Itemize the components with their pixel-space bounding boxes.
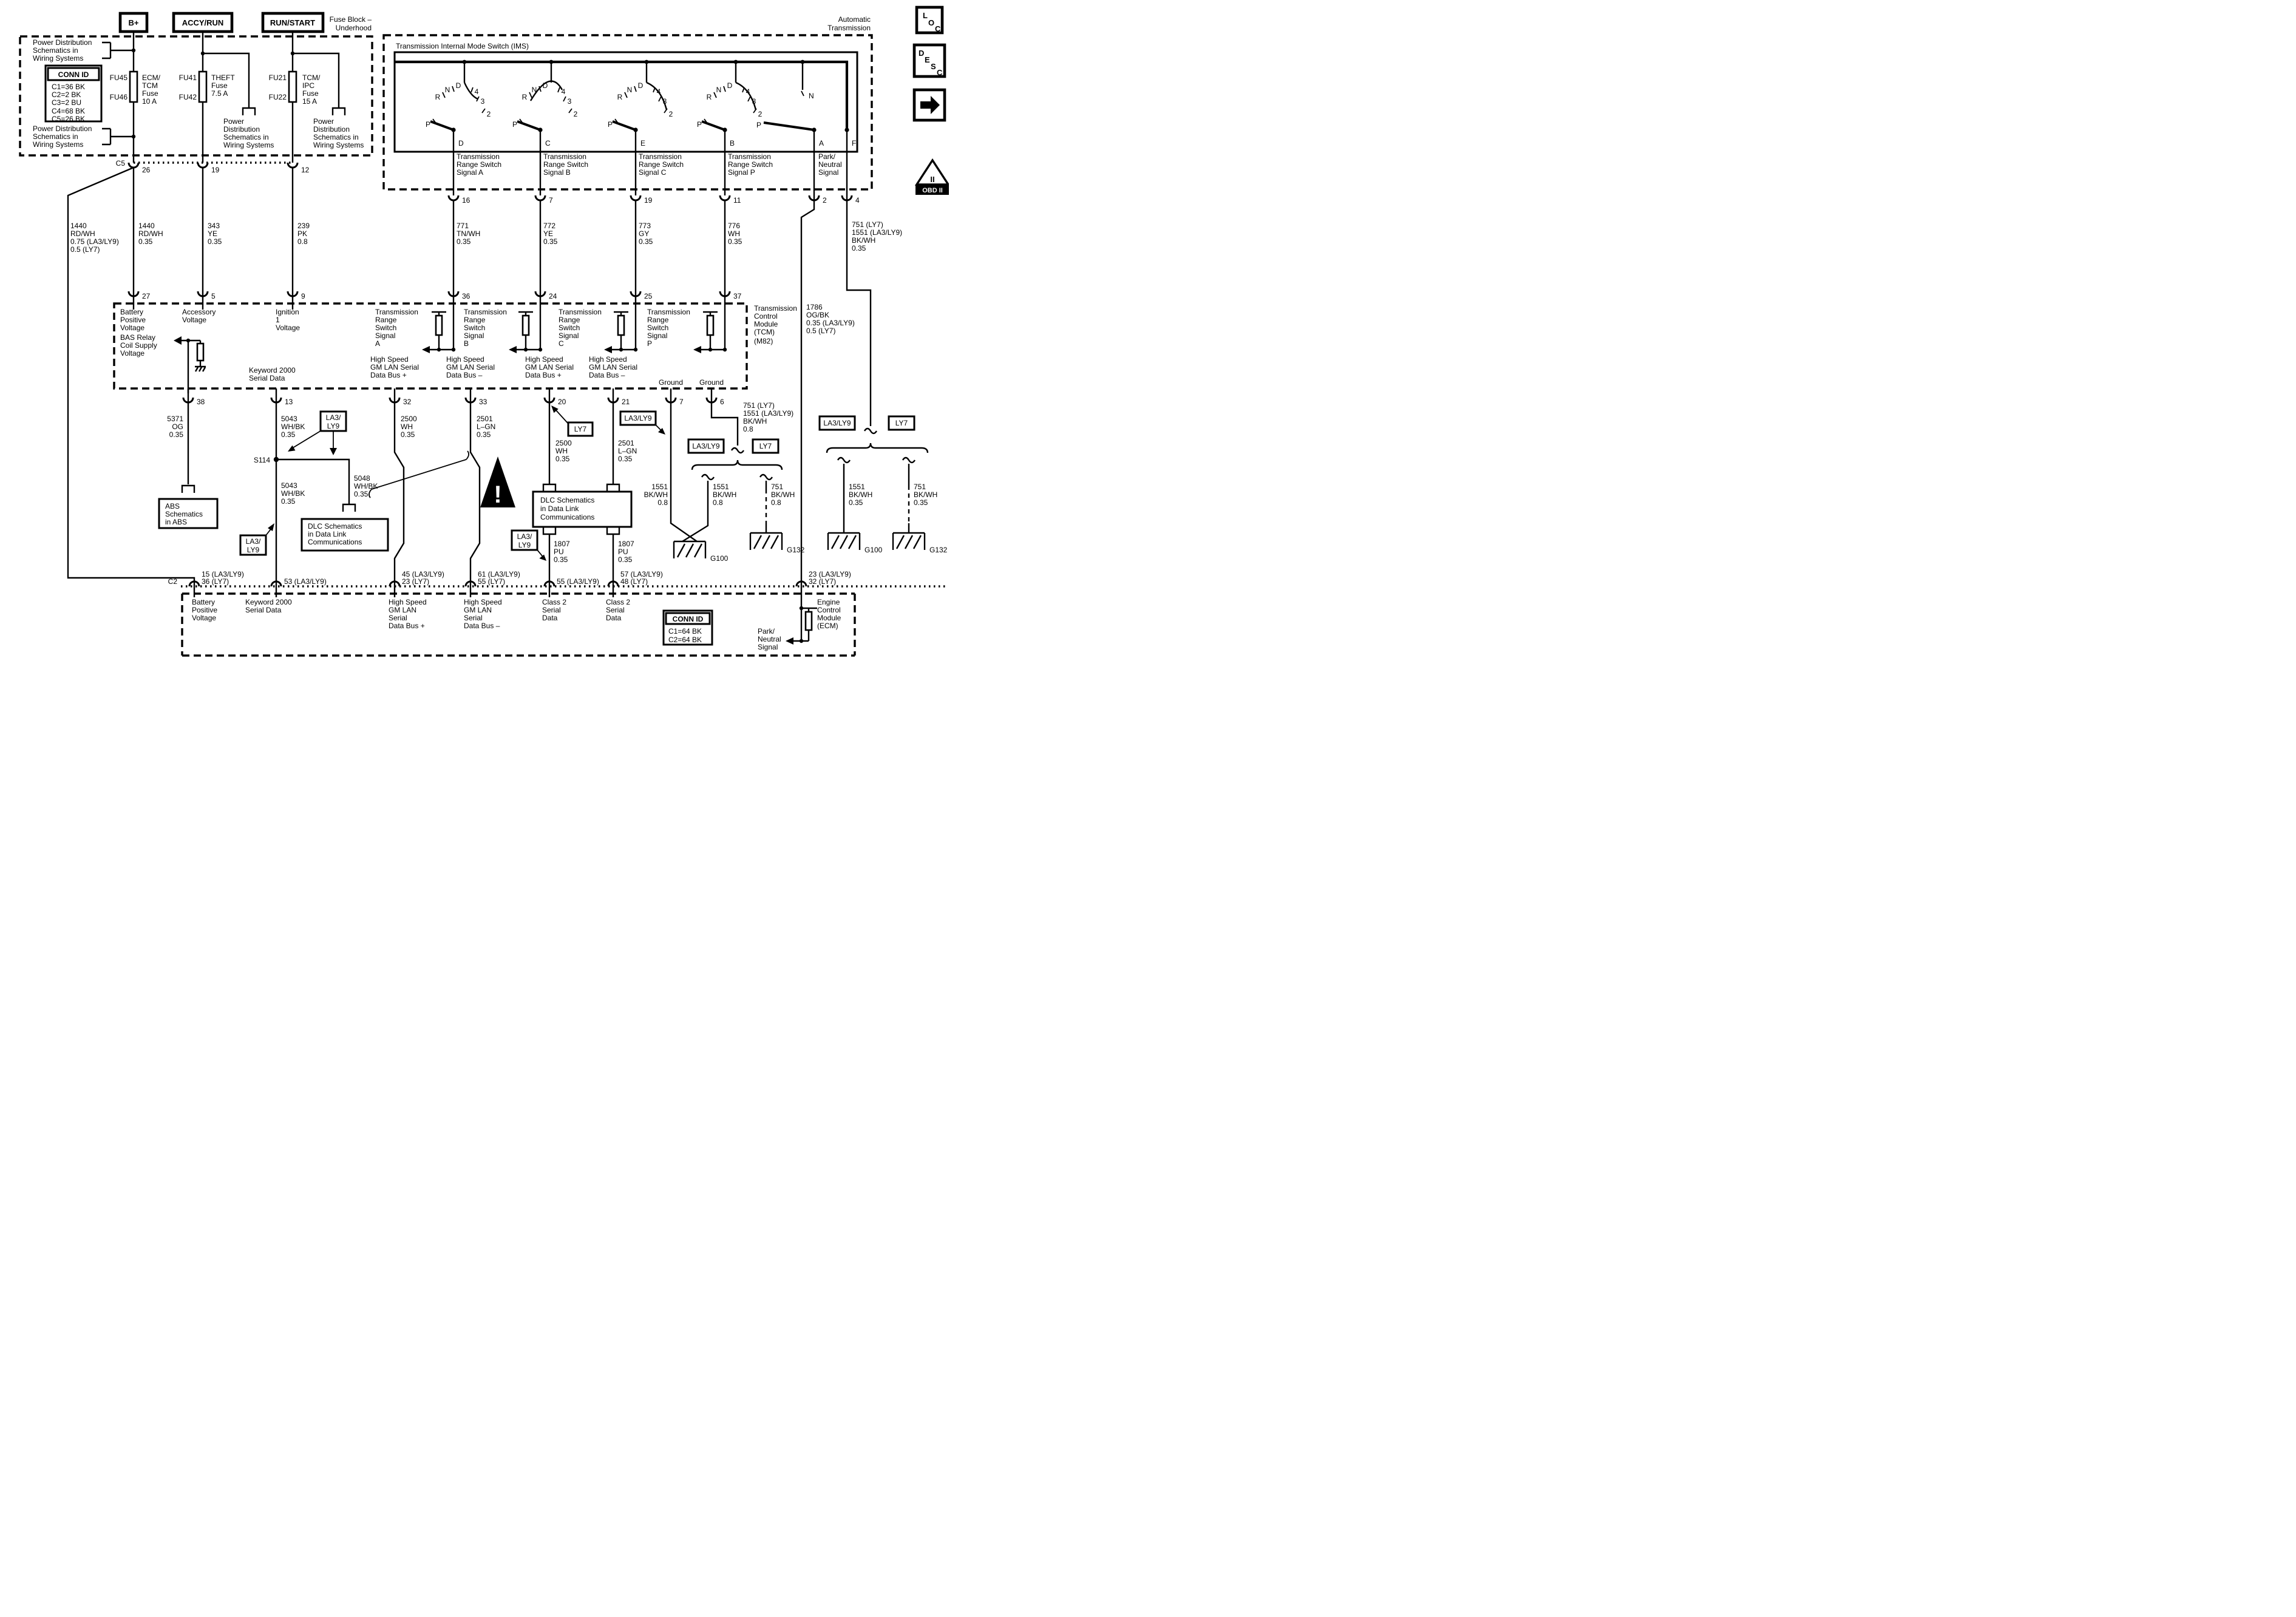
svg-text:N: N [532, 86, 537, 94]
svg-text:LY7: LY7 [759, 442, 772, 450]
svg-text:Transmission: Transmission [559, 308, 602, 316]
svg-text:C: C [559, 339, 564, 348]
svg-text:D: D [727, 81, 733, 90]
fuse-block-underhood-box: FU45 FU46 ECM/ TCM Fuse 10 A FU41 FU42 T… [20, 32, 372, 163]
svg-text:Data Bus –: Data Bus – [446, 371, 483, 379]
svg-text:751: 751 [771, 483, 783, 491]
svg-text:751 (LY7): 751 (LY7) [743, 401, 775, 410]
svg-text:0.8: 0.8 [713, 498, 723, 507]
svg-text:P: P [426, 120, 430, 129]
svg-text:Signal: Signal [647, 331, 667, 340]
svg-text:BK/WH: BK/WH [852, 236, 875, 245]
svg-text:R: R [707, 93, 712, 101]
svg-text:Voltage: Voltage [120, 324, 144, 332]
tcm-signal-p: Transmission Range Switch Signal P [647, 308, 727, 353]
fuse-tcm-ipc [289, 72, 296, 102]
svg-text:5043: 5043 [281, 481, 297, 490]
svg-text:TCM: TCM [142, 81, 158, 90]
svg-text:Wiring Systems: Wiring Systems [313, 141, 364, 149]
svg-text:D: D [458, 139, 464, 147]
svg-text:Transmission: Transmission [827, 24, 871, 32]
power-rail-b-plus: B+ [120, 13, 147, 32]
svg-text:in ABS: in ABS [165, 518, 187, 526]
schematic-canvas: B+ ACCY/RUN RUN/START Fuse Block – Under… [0, 0, 949, 668]
svg-text:Control: Control [817, 606, 841, 614]
svg-text:4: 4 [562, 87, 566, 96]
svg-text:WH: WH [555, 447, 568, 455]
svg-text:Data: Data [542, 614, 558, 622]
svg-text:5371: 5371 [167, 415, 183, 423]
svg-text:21: 21 [622, 398, 630, 406]
obd2-icon: II OBD II [915, 160, 949, 195]
svg-text:!: ! [494, 481, 501, 508]
svg-text:G100: G100 [710, 554, 729, 563]
svg-text:6: 6 [720, 398, 724, 406]
svg-text:0.5 (LY7): 0.5 (LY7) [70, 245, 100, 254]
svg-text:OBD II: OBD II [922, 187, 943, 194]
svg-text:20: 20 [558, 398, 566, 406]
svg-text:ABS: ABS [165, 502, 180, 510]
svg-text:C: C [935, 24, 941, 33]
power-rail-accy-run: ACCY/RUN [174, 13, 232, 32]
svg-text:Signal: Signal [375, 331, 395, 340]
svg-text:5043: 5043 [281, 415, 297, 423]
svg-text:R: R [617, 93, 623, 101]
svg-text:GY: GY [639, 229, 649, 238]
svg-text:LY9: LY9 [518, 541, 531, 549]
badge-la3ly9: LA3/LY9 [624, 414, 651, 422]
svg-text:Range Switch: Range Switch [543, 160, 588, 169]
svg-text:Switch: Switch [464, 324, 485, 332]
svg-text:Automatic: Automatic [838, 15, 871, 24]
loc-icon[interactable]: L O C [917, 7, 942, 33]
svg-text:Class 2: Class 2 [606, 598, 630, 606]
svg-text:Transmission: Transmission [639, 152, 682, 161]
svg-text:2501: 2501 [618, 439, 634, 447]
svg-text:Positive: Positive [120, 316, 146, 324]
ims-switch-c: R N D 4 3 2 P C [512, 62, 578, 152]
svg-text:WH: WH [401, 422, 413, 431]
svg-text:11: 11 [733, 196, 741, 205]
svg-text:15 A: 15 A [302, 97, 317, 106]
svg-text:PK: PK [297, 229, 307, 238]
svg-text:0.5 (LY7): 0.5 (LY7) [806, 327, 835, 335]
svg-text:Data Bus +: Data Bus + [389, 622, 425, 630]
svg-text:0.35: 0.35 [477, 430, 491, 439]
svg-text:Transmission: Transmission [457, 152, 500, 161]
svg-text:Keyword 2000: Keyword 2000 [249, 366, 296, 375]
svg-text:0.35: 0.35 [852, 244, 866, 253]
svg-text:S114: S114 [254, 456, 270, 464]
svg-text:FU22: FU22 [269, 93, 287, 101]
tcm-ground-branch: 1551 BK/WH 0.8 751 (LY7) 1551 (LA3/LY9) … [644, 401, 805, 563]
svg-text:FU21: FU21 [269, 73, 287, 82]
svg-text:343: 343 [208, 222, 220, 230]
svg-text:N: N [809, 92, 814, 100]
desc-icon[interactable]: D E S C [914, 45, 945, 77]
svg-text:Power: Power [313, 117, 334, 126]
svg-text:Transmission: Transmission [728, 152, 771, 161]
svg-text:53 (LA3/LY9): 53 (LA3/LY9) [284, 577, 327, 586]
svg-text:0.35: 0.35 [208, 237, 222, 246]
svg-text:773: 773 [639, 222, 651, 230]
svg-text:D: D [543, 81, 548, 90]
svg-text:Fuse: Fuse [302, 89, 319, 98]
svg-text:RD/WH: RD/WH [138, 229, 163, 238]
svg-text:0.35: 0.35 [849, 498, 863, 507]
ims-switch-e: R N D 4 3 2 P E [608, 62, 673, 152]
svg-text:in Data Link: in Data Link [308, 530, 347, 538]
svg-text:Voltage: Voltage [182, 316, 206, 324]
svg-text:1807: 1807 [554, 540, 570, 548]
svg-text:2500: 2500 [555, 439, 572, 447]
svg-text:4: 4 [746, 87, 750, 96]
svg-text:C5=26 BK: C5=26 BK [52, 115, 85, 123]
svg-text:LA3/LY9: LA3/LY9 [692, 442, 719, 450]
twisted-pair-mark [369, 451, 469, 498]
svg-text:R: R [435, 93, 441, 101]
svg-text:II: II [930, 175, 934, 184]
ims-title: Transmission Internal Mode Switch (IMS) [396, 42, 529, 50]
svg-text:7: 7 [549, 196, 553, 205]
svg-text:2: 2 [487, 110, 491, 118]
svg-text:Signal A: Signal A [457, 168, 483, 177]
svg-text:0.8: 0.8 [771, 498, 781, 507]
badge-ly7: LY7 [574, 425, 587, 433]
svg-text:Data Bus –: Data Bus – [464, 622, 500, 630]
ims-switch-b: R N D 4 3 2 P B [697, 62, 763, 152]
svg-text:Ignition: Ignition [276, 308, 299, 316]
ims-switch-d: R N D 4 3 2 P D [426, 62, 491, 152]
svg-text:Signal: Signal [464, 331, 484, 340]
svg-text:Data Bus +: Data Bus + [525, 371, 562, 379]
svg-text:Range: Range [559, 316, 580, 324]
svg-text:0.35: 0.35 [554, 555, 568, 564]
svg-text:24: 24 [549, 292, 557, 300]
svg-text:10 A: 10 A [142, 97, 157, 106]
svg-text:0.35: 0.35 [639, 237, 653, 246]
ims-signal-captions: Transmission Range Switch Signal A Trans… [457, 152, 842, 177]
svg-text:C4=68 BK: C4=68 BK [52, 107, 85, 115]
svg-text:Communications: Communications [540, 513, 594, 521]
svg-text:WH/BK: WH/BK [281, 422, 305, 431]
svg-text:0.35 (LA3/LY9): 0.35 (LA3/LY9) [806, 319, 855, 327]
svg-text:Coil Supply: Coil Supply [120, 341, 157, 350]
automatic-transmission-caption: Automatic Transmission [827, 15, 871, 32]
svg-text:Fuse: Fuse [211, 81, 228, 90]
svg-text:0.35: 0.35 [618, 455, 633, 463]
svg-text:0.35: 0.35 [281, 497, 296, 506]
ims-tcm-wires: 771 TN/WH 0.35 772 YE 0.35 773 GY 0.35 7… [453, 200, 742, 291]
svg-text:3: 3 [568, 97, 572, 106]
svg-text:Range: Range [375, 316, 397, 324]
svg-text:1440: 1440 [138, 222, 155, 230]
svg-text:FU42: FU42 [179, 93, 197, 101]
svg-text:GM LAN: GM LAN [464, 606, 492, 614]
svg-text:Transmission: Transmission [464, 308, 507, 316]
svg-text:2: 2 [574, 110, 578, 118]
svg-text:OG: OG [172, 422, 183, 431]
tcm-signal-b: Transmission Range Switch Signal B [464, 308, 542, 353]
svg-text:B: B [730, 139, 735, 147]
ground-g132-right: G132 [893, 533, 948, 554]
svg-text:CONN ID: CONN ID [58, 70, 89, 79]
svg-text:WH/BK: WH/BK [281, 489, 305, 498]
power-rail-run-start: RUN/START [263, 13, 323, 32]
svg-text:LY9: LY9 [327, 422, 340, 430]
svg-text:A: A [375, 339, 380, 348]
svg-text:DLC Schematics: DLC Schematics [308, 522, 362, 531]
svg-text:Module: Module [754, 320, 778, 328]
svg-text:Power Distribution: Power Distribution [33, 38, 92, 47]
svg-text:751 (LY7): 751 (LY7) [852, 220, 883, 229]
svg-text:RD/WH: RD/WH [70, 229, 95, 238]
svg-text:CONN ID: CONN ID [673, 615, 704, 623]
svg-text:Underhood: Underhood [336, 24, 372, 32]
connector-c5-label: C5 [116, 159, 126, 168]
svg-text:E: E [640, 139, 645, 147]
svg-text:IPC: IPC [302, 81, 314, 90]
svg-text:GM LAN: GM LAN [389, 606, 416, 614]
svg-text:YE: YE [543, 229, 553, 238]
svg-text:C2=2 BK: C2=2 BK [52, 90, 81, 99]
svg-text:0.8: 0.8 [297, 237, 308, 246]
svg-text:F: F [852, 139, 856, 147]
svg-text:0.35: 0.35 [138, 237, 153, 246]
svg-text:0.35: 0.35 [555, 455, 570, 463]
svg-text:TCM/: TCM/ [302, 73, 321, 82]
lan-wires: 2500 WH 0.35 2501 L–GN 0.35 ! [369, 405, 515, 586]
ground-g100-right: G100 [828, 533, 883, 554]
warning-triangle-icon: ! [480, 456, 515, 508]
svg-text:R: R [522, 93, 528, 101]
svg-text:751: 751 [914, 483, 926, 491]
svg-text:PU: PU [618, 547, 628, 556]
svg-text:(TCM): (TCM) [754, 328, 775, 336]
wire-1440-label: 1440 RD/WH 0.35 [138, 222, 163, 246]
ims-ground-wire: 751 (LY7) 1551 (LA3/LY9) BK/WH 0.35 LA3/… [820, 202, 948, 554]
svg-text:3: 3 [663, 97, 667, 106]
svg-text:2501: 2501 [477, 415, 493, 423]
svg-text:0.35: 0.35 [457, 237, 471, 246]
svg-text:D: D [638, 81, 644, 90]
svg-text:Ground: Ground [699, 378, 724, 387]
tcm-lan-labels: High Speed GM LAN Serial Data Bus + High… [370, 355, 637, 379]
svg-text:Fuse Block –: Fuse Block – [330, 15, 372, 24]
tcm-signal-c: Transmission Range Switch Signal C [559, 308, 637, 353]
svg-text:High Speed: High Speed [446, 355, 484, 364]
abs-branch: 5371 OG 0.35 ABS Schematics in ABS [159, 405, 217, 528]
rail-run-start-label: RUN/START [270, 18, 315, 27]
svg-text:High Speed: High Speed [589, 355, 627, 364]
svg-text:7: 7 [679, 398, 684, 406]
svg-text:Voltage: Voltage [192, 614, 216, 622]
next-arrow-icon[interactable] [914, 90, 945, 120]
svg-text:BK/WH: BK/WH [713, 490, 736, 499]
tcm-name: Transmission Control Module (TCM) (M82) [754, 304, 797, 345]
rail-b-plus-label: B+ [129, 18, 139, 27]
svg-text:C: C [937, 68, 943, 77]
wiring-diagram-page: B+ ACCY/RUN RUN/START Fuse Block – Under… [0, 0, 949, 668]
svg-text:P: P [647, 339, 652, 348]
svg-text:27: 27 [142, 292, 151, 300]
svg-text:Park/: Park/ [818, 152, 836, 161]
svg-text:Module: Module [817, 614, 841, 622]
svg-text:48 (LY7): 48 (LY7) [620, 577, 648, 586]
svg-text:1440: 1440 [70, 222, 87, 230]
ground-g100-left: G100 [674, 541, 729, 563]
ecm-park-neutral-glyph: Park/ Neutral Signal [758, 597, 817, 651]
svg-text:N: N [445, 86, 450, 94]
svg-text:3: 3 [752, 97, 756, 106]
svg-text:Class 2: Class 2 [542, 598, 566, 606]
svg-text:13: 13 [285, 398, 293, 406]
svg-text:FU46: FU46 [110, 93, 128, 101]
svg-text:Accessory: Accessory [182, 308, 216, 316]
svg-text:0.8: 0.8 [743, 425, 753, 433]
svg-text:1551: 1551 [713, 483, 729, 491]
svg-text:7.5 A: 7.5 A [211, 89, 228, 98]
svg-text:G100: G100 [864, 546, 883, 554]
svg-text:TN/WH: TN/WH [457, 229, 480, 238]
svg-text:WH/BK: WH/BK [354, 482, 378, 490]
svg-text:C1=36 BK: C1=36 BK [52, 83, 85, 91]
ims-switch-a: N P A [756, 62, 824, 152]
svg-text:C2=64 BK: C2=64 BK [668, 636, 702, 644]
svg-text:Range Switch: Range Switch [639, 160, 684, 169]
svg-text:55 (LA3/LY9): 55 (LA3/LY9) [557, 577, 599, 586]
svg-text:55 (LY7): 55 (LY7) [478, 577, 505, 586]
svg-text:High Speed: High Speed [389, 598, 427, 606]
fuse-ecm-tcm [130, 72, 137, 102]
power-dist-ref-bottom: Power Distribution Schematics in Wiring … [33, 124, 92, 149]
svg-text:1: 1 [276, 316, 280, 324]
svg-text:0.35: 0.35 [281, 430, 296, 439]
svg-text:2: 2 [669, 110, 673, 118]
svg-text:Schematics in: Schematics in [33, 46, 78, 55]
svg-text:3: 3 [481, 97, 485, 106]
svg-text:S: S [931, 62, 936, 71]
connector-c5-row: C5 26 19 12 [116, 159, 310, 174]
svg-text:B: B [464, 339, 469, 348]
power-dist-branch-accy: Power Distribution Schematics in Wiring … [223, 117, 274, 149]
svg-text:Data Bus –: Data Bus – [589, 371, 625, 379]
svg-text:High Speed: High Speed [525, 355, 563, 364]
svg-text:37: 37 [733, 292, 742, 300]
svg-text:WH: WH [728, 229, 740, 238]
svg-text:Power Distribution: Power Distribution [33, 124, 92, 133]
svg-text:0.35: 0.35 [914, 498, 928, 507]
ground-g132-left: G132 [750, 533, 805, 554]
svg-text:Neutral: Neutral [758, 635, 781, 643]
svg-text:(ECM): (ECM) [817, 622, 838, 630]
svg-text:1551: 1551 [849, 483, 865, 491]
svg-text:Transmission: Transmission [754, 304, 797, 313]
svg-text:Engine: Engine [817, 598, 840, 606]
svg-text:2: 2 [823, 196, 827, 205]
fuse-theft [199, 72, 206, 102]
svg-text:0.35: 0.35 [728, 237, 742, 246]
svg-text:12: 12 [301, 166, 310, 174]
svg-text:Wiring Systems: Wiring Systems [33, 140, 83, 149]
svg-text:1551 (LA3/LY9): 1551 (LA3/LY9) [743, 409, 793, 418]
svg-text:L–GN: L–GN [618, 447, 637, 455]
svg-text:Serial: Serial [464, 614, 483, 622]
svg-text:BAS Relay: BAS Relay [120, 333, 155, 342]
svg-text:0.35: 0.35 [169, 430, 184, 439]
svg-text:PU: PU [554, 547, 564, 556]
fuse-block-caption: Fuse Block – Underhood [330, 15, 372, 32]
svg-text:Signal: Signal [559, 331, 579, 340]
svg-text:772: 772 [543, 222, 555, 230]
svg-text:36: 36 [462, 292, 470, 300]
svg-text:Switch: Switch [647, 324, 668, 332]
ecm-box: Battery Positive Voltage Keyword 2000 Se… [182, 594, 855, 656]
svg-text:776: 776 [728, 222, 740, 230]
svg-text:32: 32 [403, 398, 412, 406]
svg-text:BK/WH: BK/WH [644, 490, 668, 499]
svg-text:LA3/: LA3/ [246, 537, 261, 546]
svg-text:Schematics in: Schematics in [223, 133, 269, 141]
svg-text:25: 25 [644, 292, 653, 300]
svg-text:38: 38 [197, 398, 205, 406]
svg-text:0.35: 0.35 [401, 430, 415, 439]
svg-text:GM LAN Serial: GM LAN Serial [370, 363, 419, 371]
svg-text:Signal: Signal [758, 643, 778, 651]
rail-accy-run-label: ACCY/RUN [182, 18, 224, 27]
badge-ly7: LY7 [895, 419, 908, 427]
svg-text:A: A [819, 139, 824, 147]
svg-text:G132: G132 [929, 546, 948, 554]
svg-text:Schematics in: Schematics in [313, 133, 359, 141]
svg-text:Serial Data: Serial Data [249, 374, 285, 382]
svg-text:O: O [928, 18, 934, 27]
svg-text:C3=2 BU: C3=2 BU [52, 98, 81, 107]
svg-text:Data: Data [606, 614, 622, 622]
svg-text:YE: YE [208, 229, 217, 238]
conn-id-table-top: CONN ID C1=36 BK C2=2 BK C3=2 BU C4=68 B… [46, 66, 101, 123]
tcm-bottom-pins: 38 13 32 33 20 21 7 6 [183, 388, 724, 406]
bas-relay-glyph: BAS Relay Coil Supply Voltage [120, 333, 206, 393]
svg-text:2500: 2500 [401, 415, 417, 423]
svg-text:Park/: Park/ [758, 627, 775, 636]
svg-text:36 (LY7): 36 (LY7) [202, 577, 229, 586]
svg-text:G132: G132 [787, 546, 805, 554]
svg-text:in Data Link: in Data Link [540, 504, 579, 513]
badge-la3ly9: LA3/LY9 [823, 419, 851, 427]
svg-text:N: N [627, 86, 633, 94]
svg-text:LA3/: LA3/ [517, 532, 532, 541]
svg-text:Transmission: Transmission [543, 152, 586, 161]
svg-text:0.35: 0.35 [354, 490, 369, 498]
svg-text:32 (LY7): 32 (LY7) [809, 577, 836, 586]
svg-text:Fuse: Fuse [142, 89, 158, 98]
svg-text:BK/WH: BK/WH [849, 490, 872, 499]
svg-text:Voltage: Voltage [276, 324, 300, 332]
svg-text:Transmission: Transmission [647, 308, 690, 316]
svg-text:Signal: Signal [818, 168, 838, 177]
power-dist-branch-run: Power Distribution Schematics in Wiring … [313, 117, 364, 149]
svg-text:OG/BK: OG/BK [806, 311, 829, 319]
svg-text:GM LAN Serial: GM LAN Serial [525, 363, 574, 371]
svg-text:L–GN: L–GN [477, 422, 495, 431]
svg-text:4: 4 [855, 196, 860, 205]
svg-text:Switch: Switch [375, 324, 396, 332]
svg-text:P: P [608, 120, 613, 129]
svg-text:Wiring Systems: Wiring Systems [223, 141, 274, 149]
svg-text:Switch: Switch [559, 324, 580, 332]
svg-text:E: E [925, 55, 930, 64]
